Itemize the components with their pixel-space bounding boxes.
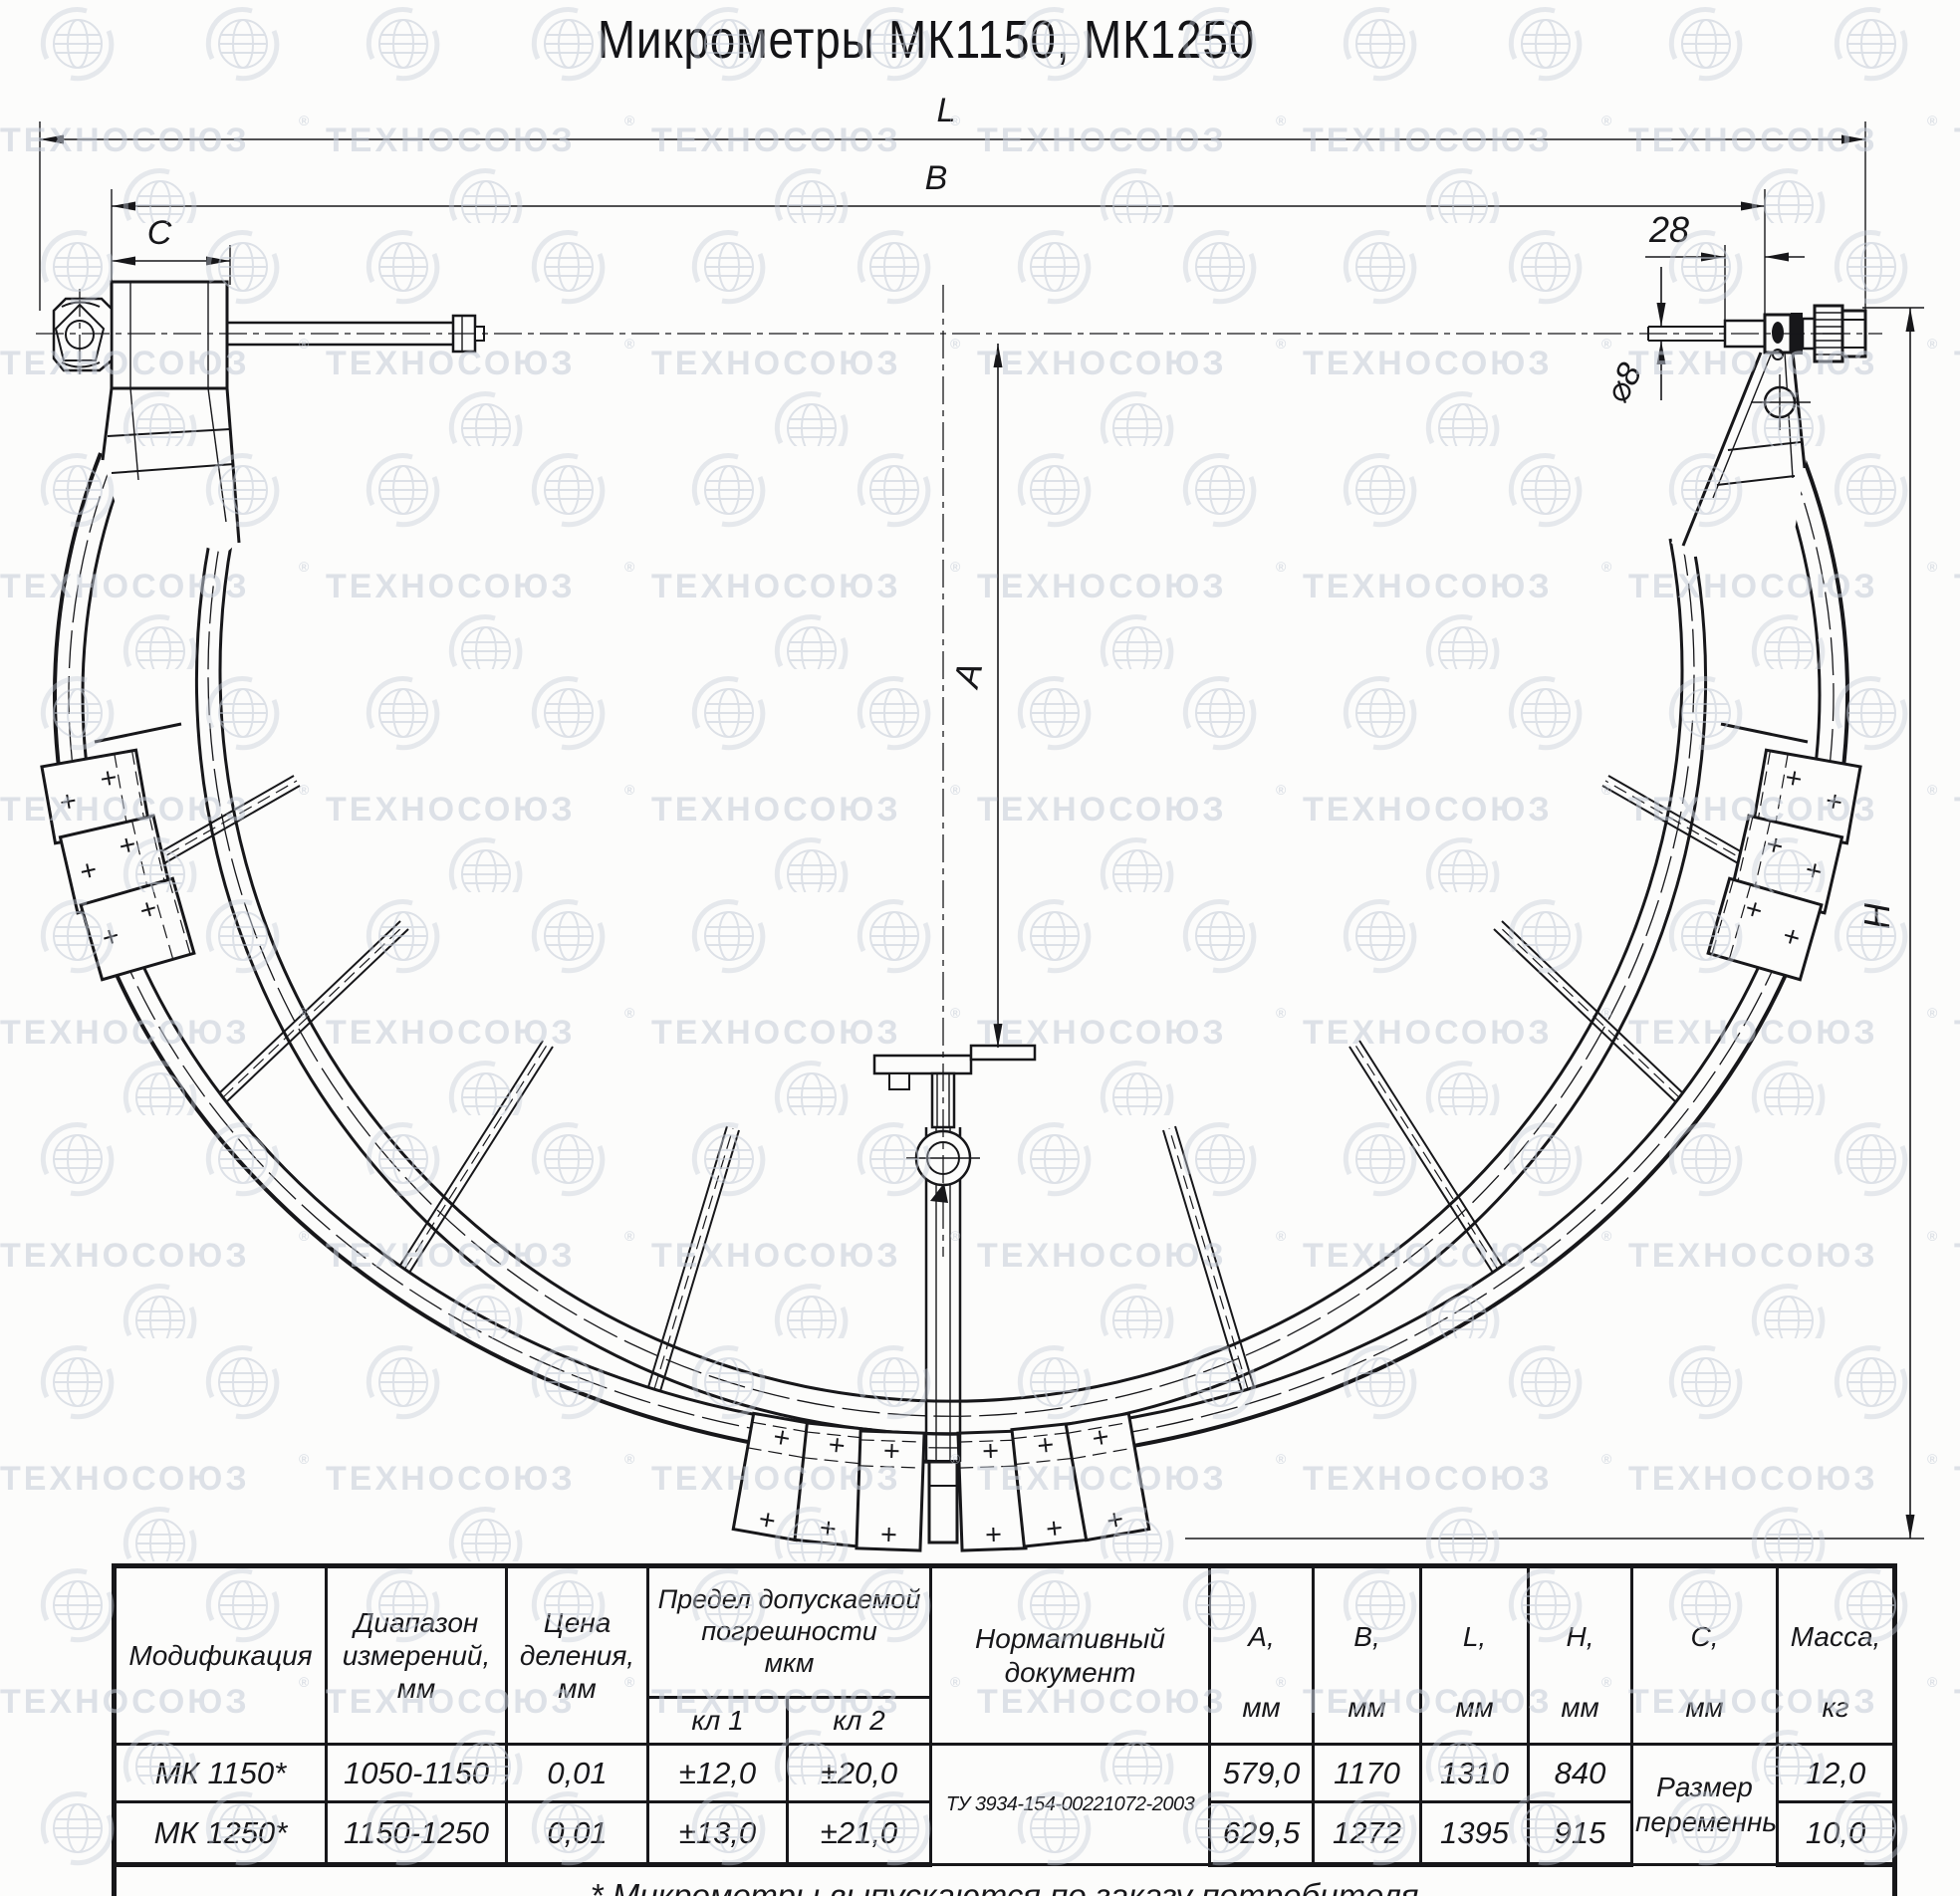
support-foot <box>929 1462 957 1542</box>
cell-class1: ±12,0 <box>648 1745 788 1802</box>
col-header-B: В,мм <box>1314 1566 1421 1745</box>
cell-class2: ±21,0 <box>788 1802 931 1865</box>
dim-label-H: H <box>1856 902 1897 929</box>
cell-division: 0,01 <box>507 1745 648 1802</box>
cell-B: 1170 <box>1314 1745 1421 1802</box>
support-plate <box>874 1056 971 1073</box>
spec-table: Модификация Диапазон измерений, мм Цена … <box>112 1563 1892 1896</box>
cell-class2: ±20,0 <box>788 1745 931 1802</box>
dim-label-28: 28 <box>1648 209 1689 250</box>
blueprint-page: Микрометры МК1150, МК1250 <box>0 0 1960 1896</box>
col-header-class1: кл 1 <box>648 1697 788 1744</box>
cell-range: 1150-1250 <box>327 1802 507 1865</box>
dim-label-C: C <box>147 214 172 252</box>
col-header-A: А,мм <box>1210 1566 1314 1745</box>
col-header-division: Цена деления, мм <box>507 1566 648 1745</box>
footnote: * Микрометры выпускаются по заказу потре… <box>115 1865 1895 1896</box>
cell-model: МК 1150* <box>115 1745 327 1802</box>
col-header-mass: Масса,кг <box>1778 1566 1895 1745</box>
cell-A: 579,0 <box>1210 1745 1314 1802</box>
cell-C-variable: Размер переменный <box>1632 1745 1778 1865</box>
col-header-class2: кл 2 <box>788 1697 931 1744</box>
col-header-modification: Модификация <box>115 1566 327 1745</box>
dim-label-B: B <box>925 159 948 197</box>
col-header-H: Н,мм <box>1529 1566 1632 1745</box>
left-tower <box>102 282 243 554</box>
cell-mass: 10,0 <box>1778 1802 1895 1865</box>
col-header-range: Диапазон измерений, мм <box>327 1566 507 1745</box>
cell-A: 629,5 <box>1210 1802 1314 1865</box>
col-header-document: Нормативный документ <box>931 1566 1210 1745</box>
anvil-adjust-nut <box>54 299 112 370</box>
cell-model: МК 1250* <box>115 1802 327 1865</box>
cell-H: 915 <box>1529 1802 1632 1865</box>
cell-B: 1272 <box>1314 1802 1421 1865</box>
cell-division: 0,01 <box>507 1802 648 1865</box>
col-header-L: L,мм <box>1421 1566 1529 1745</box>
drawing-title: Микрометры МК1150, МК1250 <box>598 10 1255 70</box>
col-header-C: С,мм <box>1632 1566 1778 1745</box>
cell-range: 1050-1150 <box>327 1745 507 1802</box>
cell-H: 840 <box>1529 1745 1632 1802</box>
cell-mass: 12,0 <box>1778 1745 1895 1802</box>
cell-L: 1310 <box>1421 1745 1529 1802</box>
cell-class1: ±13,0 <box>648 1802 788 1865</box>
cell-document: ТУ 3934-154-00221072-2003 <box>931 1745 1210 1865</box>
dim-label-L: L <box>937 92 956 129</box>
table-footnote-row: * Микрометры выпускаются по заказу потре… <box>115 1865 1895 1896</box>
table-row-mk1150: МК 1150* 1050-1150 0,01 ±12,0 ±20,0 ТУ 3… <box>115 1745 1895 1802</box>
cell-L: 1395 <box>1421 1802 1529 1865</box>
col-header-error-limit: Предел допускаемой погрешности мкм <box>648 1566 931 1698</box>
